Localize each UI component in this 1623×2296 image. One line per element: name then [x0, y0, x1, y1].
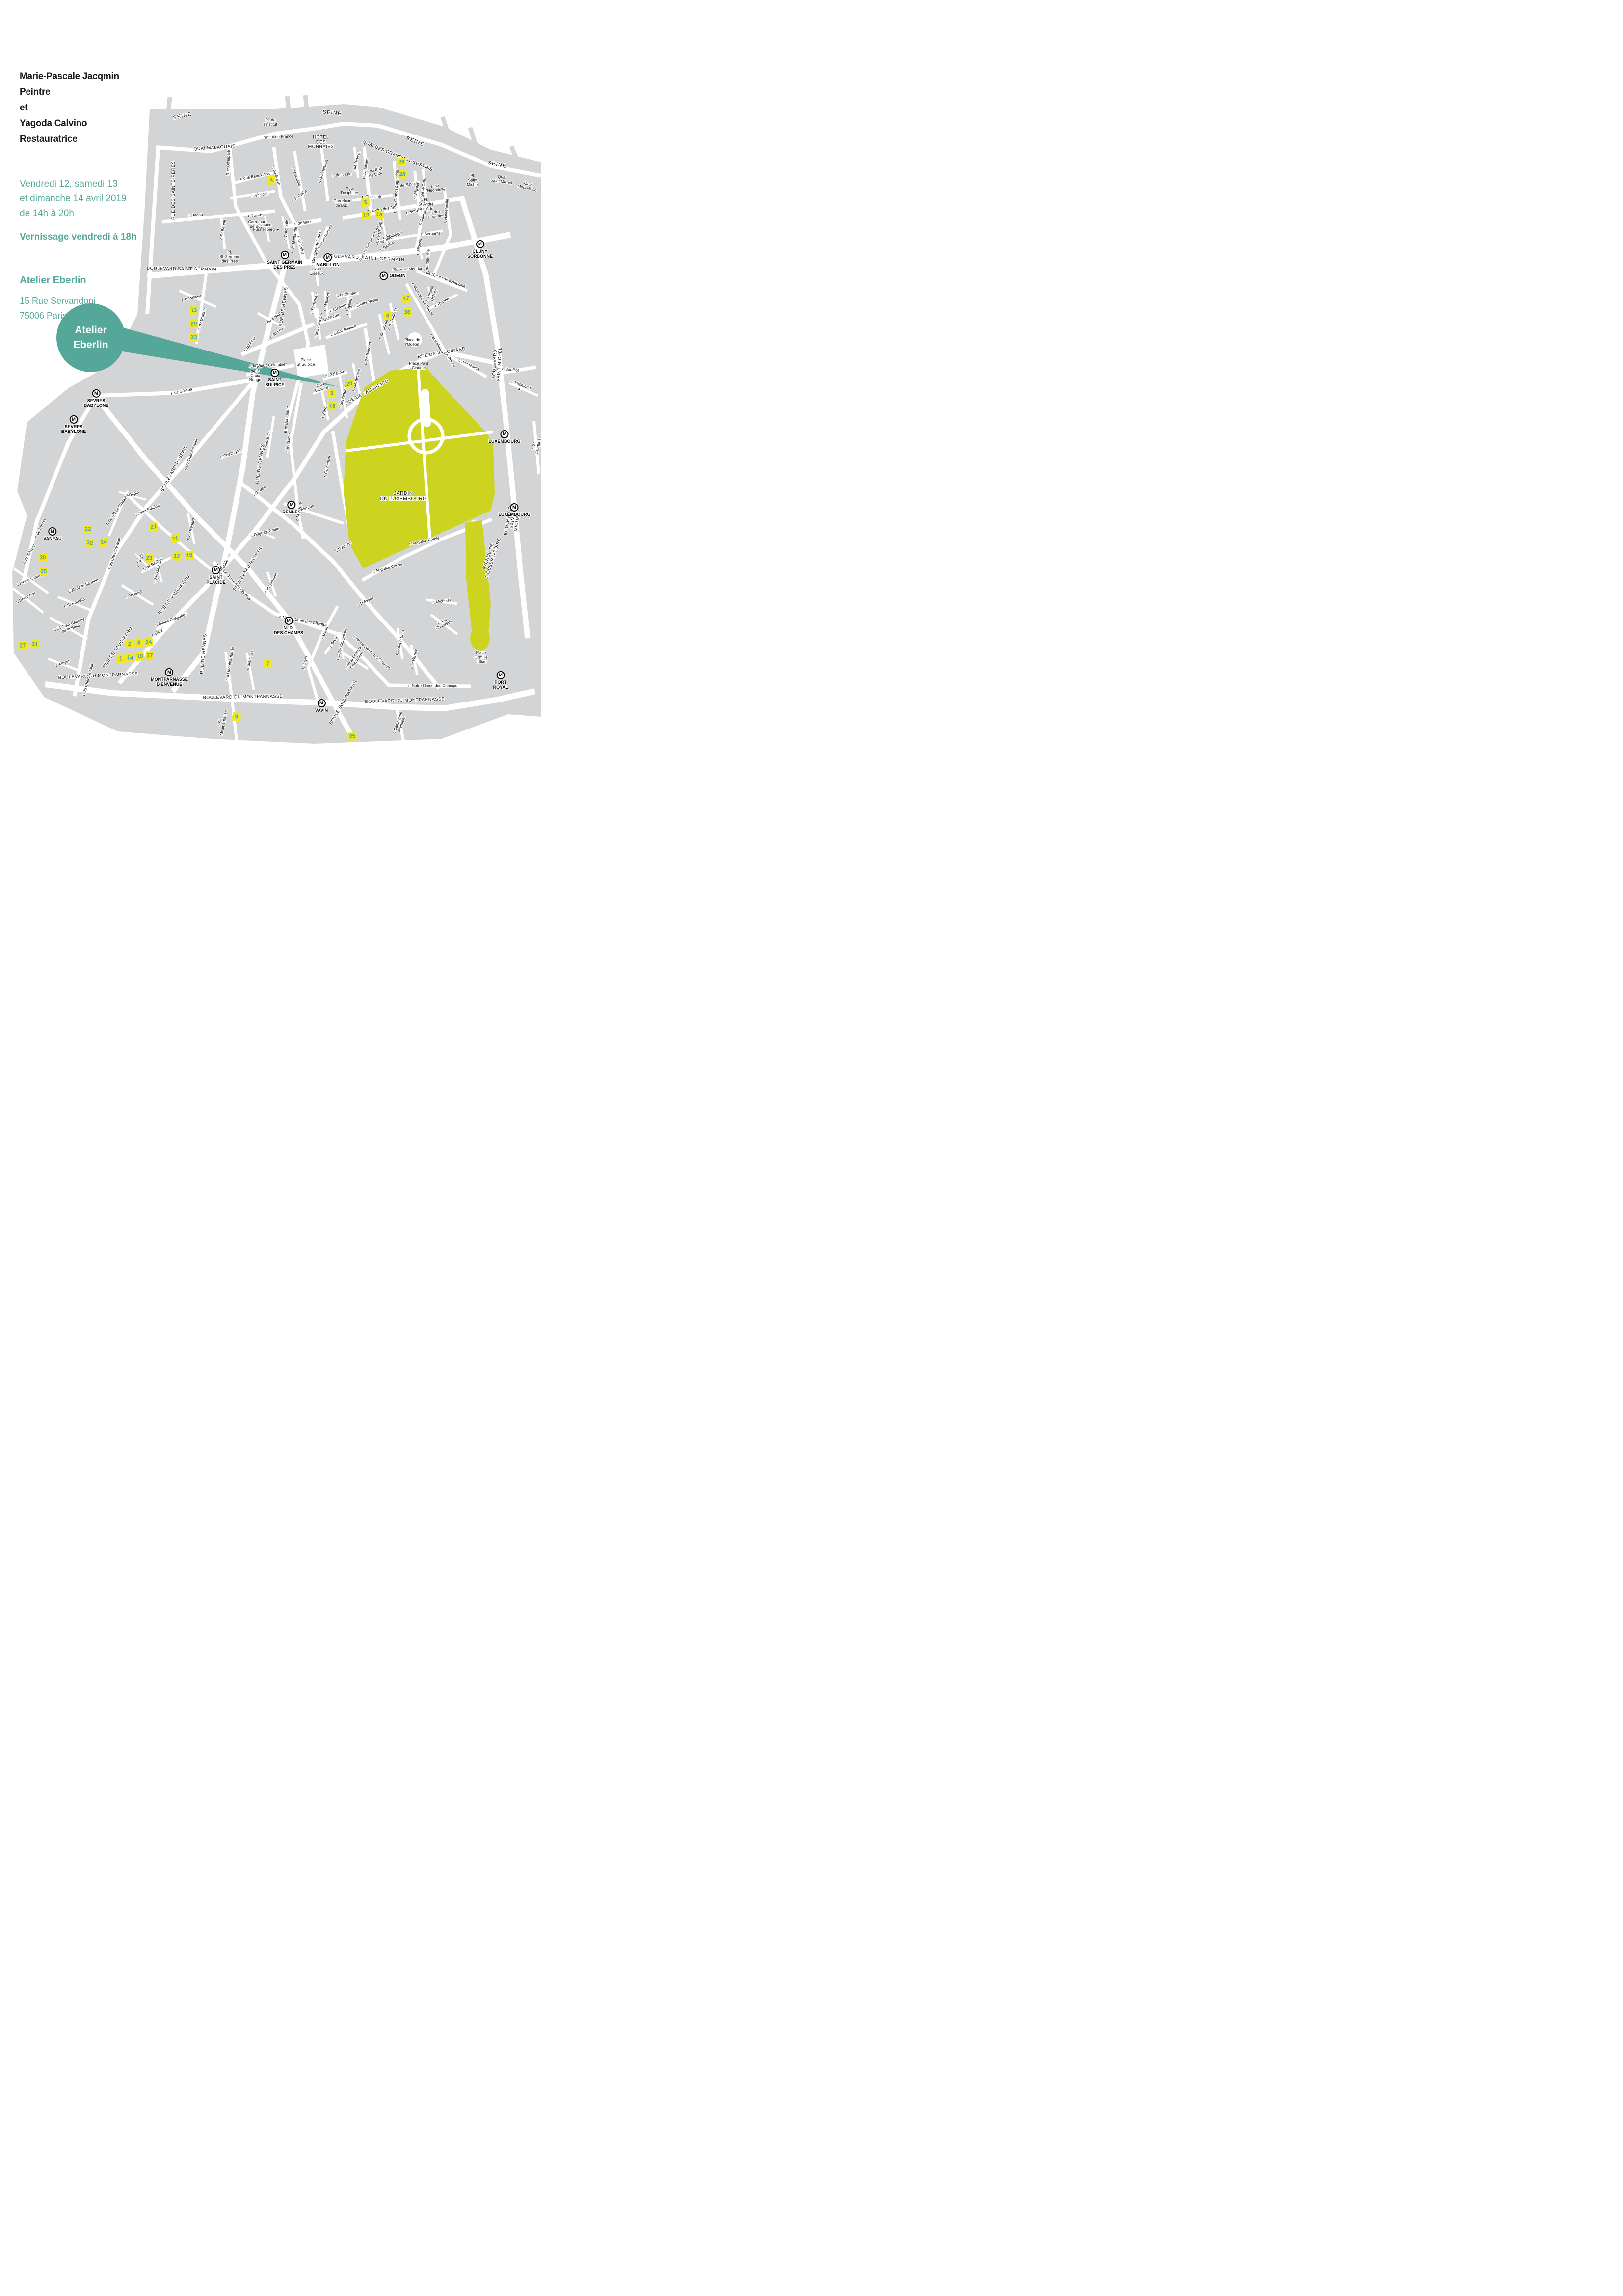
street-label: Place Paul Claudel: [409, 362, 428, 371]
atelier-callout-bubble: Atelier Eberlin: [56, 303, 125, 372]
map-marker-33: 33: [189, 332, 198, 342]
map-marker-8: 8: [134, 638, 143, 647]
map-marker-10: 10: [362, 211, 371, 219]
street-label: Pge Dauphine: [341, 187, 358, 196]
street-label: Pl. de l'Institut: [264, 118, 277, 127]
map-marker-30: 30: [39, 554, 47, 562]
map-marker-26: 26: [398, 158, 406, 166]
map-marker-1: 1: [117, 655, 125, 663]
map-marker-28: 28: [398, 169, 407, 179]
map-marker-19: 19: [135, 651, 144, 661]
metro-station-name: SAINT PLACIDE: [206, 575, 226, 585]
metro-station: MODEON: [379, 272, 405, 280]
metro-icon: M: [476, 240, 484, 248]
map-marker-25: 25: [347, 731, 357, 741]
street-label: Place de l'Odéon: [404, 338, 420, 347]
metro-icon: M: [49, 527, 57, 536]
map-marker-34: 34: [99, 538, 108, 547]
event-dates: Vendredi 12, samedi 13 et dimanche 14 av…: [20, 177, 127, 221]
metro-station-name: SEVRES BABYLONE: [61, 424, 86, 434]
metro-station: MSEVRES BABYLONE: [84, 389, 109, 408]
street-label: Place St Sulpice: [297, 358, 315, 367]
metro-station: MSAINT PLACIDE: [206, 566, 226, 585]
street-label: HOTEL DES MONNAIES: [308, 135, 334, 149]
metro-station-name: ODEON: [389, 273, 405, 278]
map-marker-15: 15: [327, 401, 337, 410]
map-marker-14: 14: [125, 653, 134, 662]
metro-station-name: MONTPARNASSE BIENVENUE: [151, 677, 188, 687]
street-label: Carrefour de Buci: [248, 220, 266, 229]
metro-station: MRENNES: [282, 501, 301, 514]
street-label: r. Notre-Dame des Champs: [408, 684, 457, 689]
metro-station: MMONTPARNASSE BIENVENUE: [151, 668, 188, 687]
metro-station: MLUXEMBOURG: [489, 430, 521, 444]
map-marker-4: 4: [266, 175, 276, 185]
street-label: RUE DES SAINTS PERES: [171, 161, 176, 220]
map-marker-20: 20: [345, 379, 354, 388]
street-label: Pl. Saint Michel: [467, 174, 479, 188]
map-marker-3: 3: [328, 389, 336, 398]
map-marker-16: 16: [185, 550, 194, 560]
metro-station: MCLUNY SORBONNE: [467, 240, 493, 259]
map-marker-31: 31: [30, 639, 39, 648]
metro-station-name: SAINT SULPICE: [265, 378, 284, 387]
metro-station: MLUXEMBOURG: [499, 503, 531, 517]
metro-station: MSEVRES BABYLONE: [61, 415, 86, 434]
metro-station-name: RENNES: [282, 510, 301, 514]
street-label: Pl. St Germain des Prés: [219, 251, 239, 264]
map-marker-7: 7: [263, 659, 272, 668]
camille-jullian-green: [470, 625, 490, 651]
vernissage-line: Vernissage vendredi à 18h: [20, 232, 137, 243]
metro-icon: M: [69, 415, 78, 424]
metro-station: MSAINT GERMAIN DES PRES: [267, 251, 302, 270]
callout-line2: Eberlin: [73, 338, 108, 352]
metro-icon: M: [501, 430, 509, 438]
metro-station-name: PORT ROYAL: [493, 680, 508, 690]
map-marker-29: 29: [190, 320, 198, 328]
metro-icon: M: [92, 389, 100, 398]
metro-station-name: SEVRES BABYLONE: [84, 398, 109, 408]
map-marker-13: 13: [189, 305, 198, 315]
seine-bridge: [287, 96, 290, 119]
seine-bridge: [305, 95, 308, 118]
metro-station-name: VAVIN: [315, 708, 328, 713]
metro-station: MN.-D. DES CHAMPS: [274, 617, 303, 635]
metro-icon: M: [165, 668, 174, 676]
street-label: Carrefour de Buci: [334, 199, 351, 208]
callout-line1: Atelier: [75, 323, 106, 338]
map-marker-24: 24: [144, 637, 153, 647]
metro-station-name: VANEAU: [43, 536, 61, 541]
venue-name: Atelier Eberlin: [20, 275, 86, 286]
map-marker-22: 22: [84, 525, 92, 534]
map-marker-9: 9: [232, 712, 241, 721]
map-marker-27: 27: [19, 642, 27, 650]
metro-station: MPORT ROYAL: [493, 671, 508, 690]
park-label: JARDIN DU LUXEMBOURG: [380, 491, 427, 502]
metro-icon: M: [212, 566, 220, 574]
seine-bridge: [168, 97, 170, 118]
street-label: Place Camille Jullian: [474, 651, 487, 665]
metro-station: MSAINT SULPICE: [265, 369, 284, 387]
metro-station-name: N.-D. DES CHAMPS: [274, 625, 303, 635]
map-marker-12: 12: [172, 551, 181, 561]
metro-station-name: CLUNY SORBONNE: [467, 249, 493, 259]
metro-station: MMABILLON: [316, 253, 340, 267]
map-marker-32: 32: [85, 538, 94, 547]
map-marker-37: 37: [146, 652, 154, 660]
map-marker-5: 5: [361, 197, 370, 207]
metro-icon: M: [281, 251, 289, 259]
metro-station-name: LUXEMBOURG: [489, 439, 521, 444]
map-marker-36: 36: [403, 308, 412, 317]
metro-icon: M: [284, 617, 293, 625]
artist-names: Marie-Pascale Jacqmin Peintre et Yagoda …: [20, 69, 119, 147]
metro-station: MVANEAU: [43, 527, 61, 541]
map-marker-11: 11: [170, 534, 180, 543]
metro-station-name: MABILLON: [316, 262, 340, 267]
map-marker-18: 18: [374, 210, 384, 219]
map-marker-23: 23: [145, 554, 154, 563]
metro-icon: M: [379, 272, 388, 280]
metro-icon: M: [317, 699, 325, 707]
map-marker-17: 17: [401, 294, 411, 303]
map-marker-6: 6: [383, 311, 392, 320]
map-marker-2: 2: [126, 640, 134, 648]
metro-icon: M: [324, 253, 332, 262]
street-label: r. de l'Hirondelle: [425, 183, 446, 193]
metro-icon: M: [287, 501, 295, 509]
metro-station-name: LUXEMBOURG: [499, 512, 531, 517]
metro-icon: M: [270, 369, 279, 377]
metro-icon: M: [510, 503, 519, 512]
street-label: r. des Ciseaux: [309, 268, 324, 276]
metro-station: MVAVIN: [315, 699, 328, 713]
map-marker-21: 21: [149, 522, 158, 531]
metro-station-name: SAINT GERMAIN DES PRES: [267, 260, 302, 270]
flyer-page: Marie-Pascale Jacqmin Peintre et Yagoda …: [0, 0, 541, 765]
map-marker-35: 35: [39, 567, 48, 576]
metro-icon: M: [497, 671, 505, 679]
